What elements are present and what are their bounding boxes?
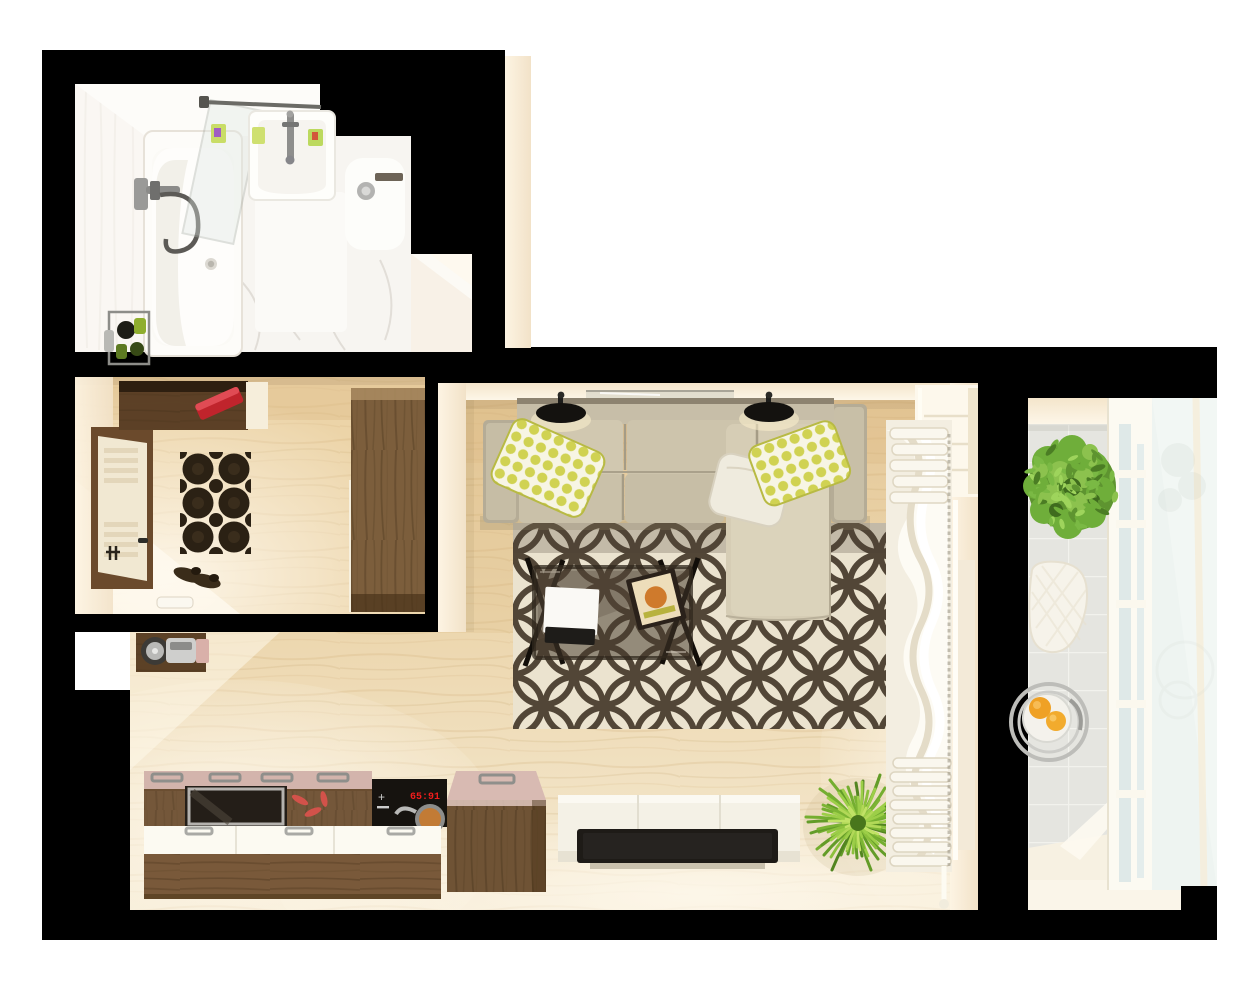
- svg-text:65:91: 65:91: [410, 792, 440, 803]
- svg-text:+: +: [378, 790, 385, 804]
